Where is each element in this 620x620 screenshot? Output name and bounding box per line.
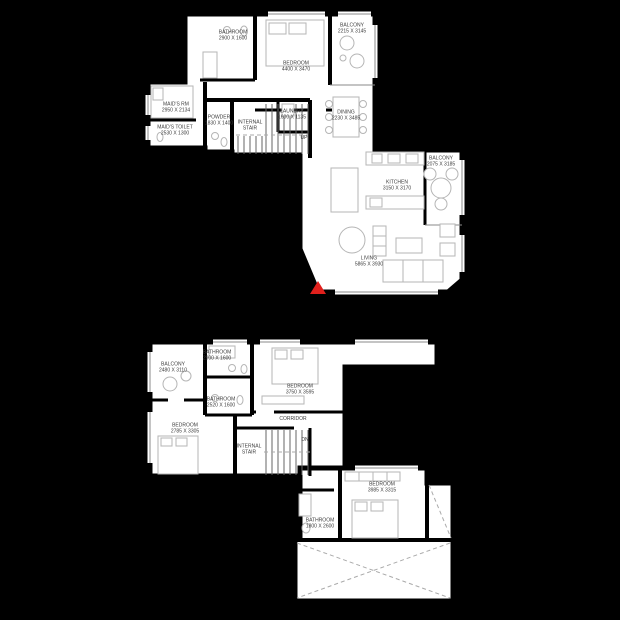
- upper-plan: [148, 14, 462, 294]
- floor-plan-canvas: BATHROOM2900 X 1600 BEDROOM4400 X 3470 B…: [0, 0, 620, 620]
- lower-plan: [150, 342, 453, 601]
- floor-plan-drawing: [0, 0, 620, 620]
